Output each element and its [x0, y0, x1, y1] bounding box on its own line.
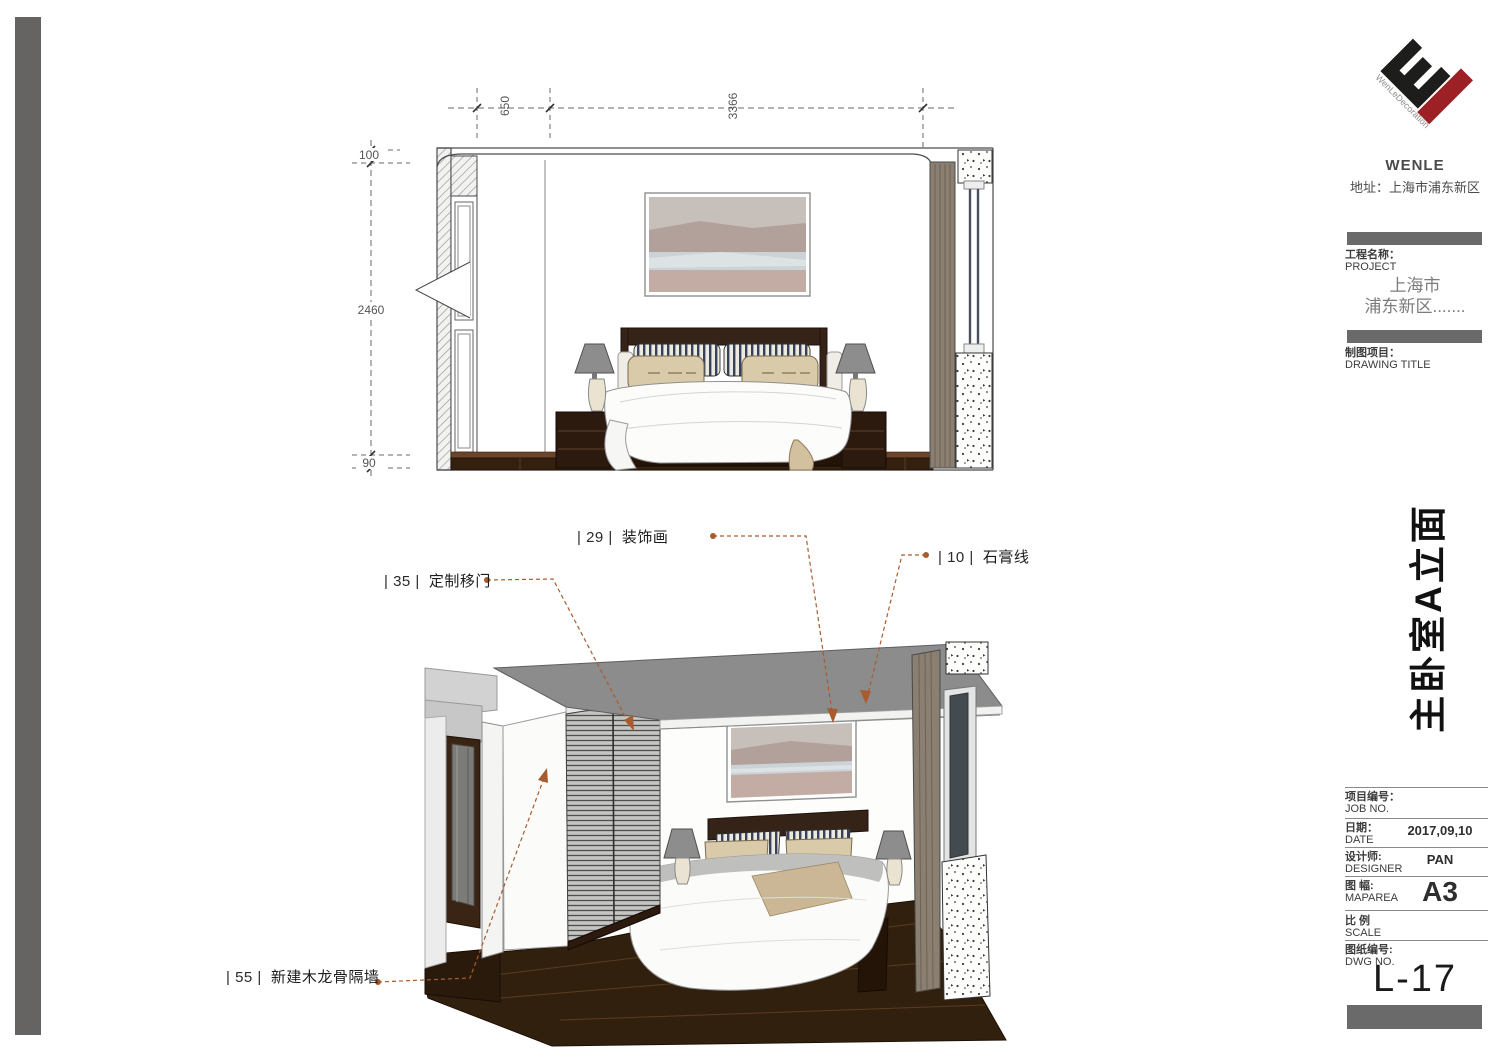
company-address: 地址：上海市浦东新区 — [1345, 177, 1485, 196]
callout-plaster-line: | 10 |石膏线 — [938, 546, 1029, 567]
drawing-title-vertical: 主卧室A立面 — [1398, 478, 1442, 758]
callout-partition-wall: | 55 |新建木龙骨隔墙 — [226, 966, 379, 987]
titleblock-rule — [1345, 818, 1488, 819]
duvet — [605, 382, 852, 464]
dim-left-100: 100 — [359, 148, 379, 162]
callout-label: 定制移门 — [429, 573, 491, 590]
designer-value: PAN — [1400, 852, 1480, 867]
perspective-drawing — [375, 533, 1006, 1046]
callout-sliding-door: | 35 |定制移门 — [384, 570, 491, 591]
scale-label-cn: 比 例 — [1345, 915, 1485, 927]
date-value: 2017,09,10 — [1395, 823, 1485, 838]
maparea-value: A3 — [1395, 876, 1485, 908]
perspective-curtain — [912, 650, 940, 992]
drawing-sheet: 650 3366 100 2460 90 — [0, 0, 1500, 1061]
elevation-curtain — [930, 162, 955, 468]
dim-top-3366: 3366 — [726, 92, 740, 119]
new-partition-wall — [482, 712, 568, 958]
sliding-door-wardrobe — [566, 688, 660, 950]
titleblock-bar — [1347, 1005, 1482, 1029]
callout-code: | 35 | — [384, 573, 420, 590]
drawing-title-label-cn: 制图项目： — [1345, 347, 1485, 359]
nightstand-left — [556, 412, 610, 468]
project-name-line2: 浦东新区....... — [1345, 292, 1485, 317]
perspective-artwork — [727, 719, 856, 802]
dim-top-650: 650 — [498, 96, 512, 116]
callout-decorative-painting: | 29 |装饰画 — [577, 526, 668, 547]
titleblock-rule — [1345, 940, 1488, 941]
callout-label: 装饰画 — [622, 529, 669, 546]
titleblock-bar — [1347, 330, 1482, 343]
drawing-number: L-17 — [1345, 958, 1485, 1001]
titleblock-rule — [1345, 847, 1488, 848]
callout-code: | 55 | — [226, 969, 262, 986]
elevation-window-column — [956, 150, 992, 468]
company-logo: WenLeDecoration — [1363, 22, 1473, 134]
scale-label-en: SCALE — [1345, 927, 1485, 940]
callout-code: | 29 | — [577, 529, 613, 546]
callout-label: 新建木龙骨隔墙 — [271, 969, 380, 986]
dim-left-2460: 2460 — [358, 303, 385, 317]
elevation-artwork — [645, 193, 810, 296]
titleblock-rule — [1345, 910, 1488, 911]
titleblock-rule — [1345, 787, 1488, 788]
drawing-title-label-en: DRAWING TITLE — [1345, 359, 1485, 372]
dim-left-90: 90 — [362, 456, 376, 470]
callout-label: 石膏线 — [983, 549, 1030, 566]
titleblock-bar — [1347, 232, 1482, 245]
project-label-cn: 工程名称： — [1345, 249, 1485, 261]
callout-code: | 10 | — [938, 549, 974, 566]
company-name: WENLE — [1345, 157, 1485, 174]
dwgno-label-cn: 图纸编号: — [1345, 944, 1485, 956]
jobno-label-cn: 项目编号： — [1345, 791, 1485, 803]
elevation-drawing: 650 3366 100 2460 90 — [348, 88, 993, 478]
jobno-label-en: JOB NO. — [1345, 803, 1485, 816]
drawing-canvas: 650 3366 100 2460 90 — [0, 0, 1340, 1061]
